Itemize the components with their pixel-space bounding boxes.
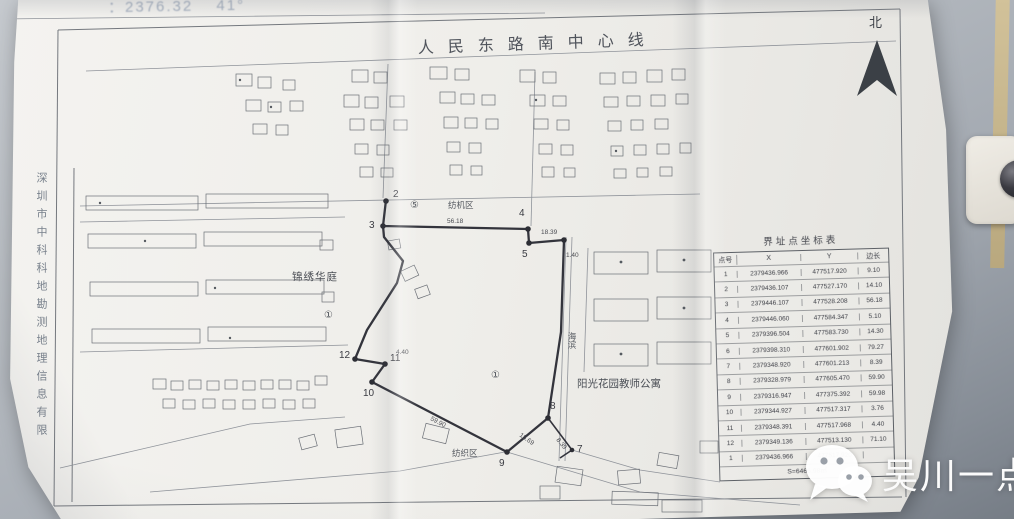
cell-edge: 8.39 [861, 359, 891, 367]
label-circle-1-left: ① [324, 310, 333, 321]
point-label-2: 2 [393, 189, 399, 200]
cell-point-no: 9 [718, 394, 741, 402]
cell-point-no: 11 [719, 424, 742, 432]
cell-point-no: 1 [720, 455, 743, 463]
cell-y: 477517.920 [801, 267, 858, 276]
cell-edge: 56.18 [859, 297, 889, 305]
cell-y: 477605.470 [804, 375, 861, 384]
watermark-text: 吴川一点通 [882, 447, 1014, 499]
boundary-point-dots [352, 198, 574, 455]
cell-point-no: 8 [718, 378, 741, 386]
edge-label-18-39: 18.39 [541, 229, 558, 236]
building-outlines [86, 67, 718, 512]
point-label-9: 9 [499, 458, 505, 469]
edge-label-1-40: 1.40 [566, 252, 579, 259]
map-title: 人民东路南中心线 [418, 31, 658, 57]
parcel-boundary [355, 200, 572, 458]
cell-x: 2379446.060 [739, 315, 803, 324]
header-y: Y [801, 252, 858, 261]
header-x: X [737, 254, 801, 263]
cell-x: 2379328.979 [741, 376, 805, 385]
cell-x: 2379436.966 [738, 269, 802, 278]
label-fangji-zone: 纺机区 [448, 200, 474, 210]
header-point-no: 点号 [714, 254, 737, 265]
building-door-dots [99, 79, 686, 356]
cell-x: 2379436.107 [738, 284, 802, 293]
edge-length-labels: 56.18 18.39 1.40 15.69 59.90 4.40 8.39 [396, 218, 579, 451]
watermark: 吴川一点通 [802, 442, 1014, 504]
label-road-name: 海滨 [567, 331, 577, 350]
cell-point-no: 7 [717, 363, 740, 371]
cell-edge: 5.10 [860, 312, 890, 320]
cell-y: 477601.213 [804, 359, 861, 368]
edge-label-8-39: 8.39 [554, 437, 568, 451]
cell-x: 2379446.107 [738, 299, 802, 308]
cell-edge: 9.10 [859, 266, 889, 274]
cell-edge: 3.76 [862, 405, 892, 413]
cell-edge: 59.90 [862, 374, 892, 382]
cell-y: 477601.902 [804, 344, 861, 353]
edge-label-4-40: 4.40 [396, 349, 409, 356]
cell-edge: 4.40 [863, 420, 893, 428]
cell-y: 477584.347 [803, 313, 860, 322]
cell-edge: 59.98 [862, 389, 892, 397]
point-label-4: 4 [519, 208, 525, 219]
point-label-12: 12 [339, 350, 351, 361]
cell-edge: 79.27 [861, 343, 891, 351]
point-label-7: 7 [577, 444, 583, 455]
cell-y: 477527.170 [802, 283, 859, 292]
label-yangguang-apartment: 阳光花园教师公寓 [577, 377, 661, 390]
cell-x: 2379316.947 [741, 392, 805, 401]
cell-edge: 14.10 [859, 282, 889, 290]
cell-y: 477375.392 [805, 390, 862, 399]
cell-edge: 14.30 [860, 328, 890, 336]
point-label-8: 8 [550, 401, 556, 412]
header-edge: 边长 [858, 250, 888, 261]
label-circle-1-center: ① [491, 370, 500, 381]
cell-point-no: 5 [716, 332, 739, 340]
point-label-3: 3 [369, 220, 375, 231]
label-circle-5: ⑤ [410, 200, 419, 211]
cell-x: 2379348.920 [740, 361, 804, 370]
cell-point-no: 1 [715, 271, 738, 279]
cell-x: 2379396.504 [739, 330, 803, 339]
cell-x: 2379349.136 [742, 438, 806, 447]
cell-x: 2379398.310 [740, 346, 804, 355]
point-label-5: 5 [522, 249, 528, 260]
cell-point-no: 3 [715, 301, 738, 309]
cell-x: 2379344.927 [741, 407, 805, 416]
cell-point-no: 12 [719, 440, 742, 448]
cell-y: 477583.730 [803, 329, 860, 338]
cell-x: 2379348.391 [742, 423, 806, 432]
cell-y: 477517.968 [806, 421, 863, 430]
cell-point-no: 4 [716, 317, 739, 325]
cell-y: 477528.208 [802, 298, 859, 307]
label-jinxiu-huating: 锦绣华庭 [292, 270, 338, 283]
edge-label-59-90: 59.90 [429, 416, 447, 430]
coordinate-table-body: 1 2379436.966 477517.920 9.10 2 2379436.… [714, 263, 894, 468]
cell-point-no: 6 [717, 347, 740, 355]
north-arrow-icon [857, 40, 897, 96]
north-arrow: 北 [857, 15, 897, 96]
point-label-10: 10 [363, 388, 375, 399]
north-label: 北 [869, 15, 882, 30]
label-fangzhi-zone: 纺织区 [452, 448, 478, 458]
photo-stage: ：2376.32 41° 深圳市中科科地勘测地理信息有限 [0, 0, 1014, 519]
wechat-icon [802, 442, 874, 504]
cell-y: 477517.317 [805, 406, 862, 415]
cell-point-no: 2 [715, 286, 738, 294]
cell-x: 2379436.966 [743, 453, 807, 462]
edge-label-56-18: 56.18 [447, 218, 464, 225]
cell-point-no: 10 [718, 409, 741, 417]
